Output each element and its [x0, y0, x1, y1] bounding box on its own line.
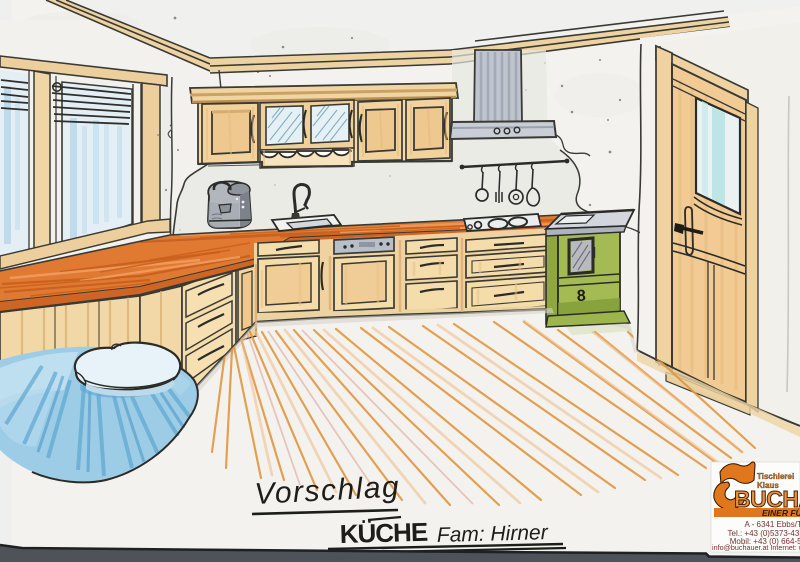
- svg-text:A - 6341 Ebbs/Tir: A - 6341 Ebbs/Tir: [744, 520, 800, 529]
- svg-text:Tischlerei: Tischlerei: [757, 472, 794, 481]
- svg-text:Fam: Hirner: Fam: Hirner: [437, 521, 549, 547]
- svg-text:KÜCHE: KÜCHE: [339, 517, 428, 549]
- svg-text:EINER FÜR A: EINER FÜR A: [762, 508, 800, 518]
- svg-text:info@buchauer.at Internet: w: info@buchauer.at Internet: w: [712, 543, 800, 552]
